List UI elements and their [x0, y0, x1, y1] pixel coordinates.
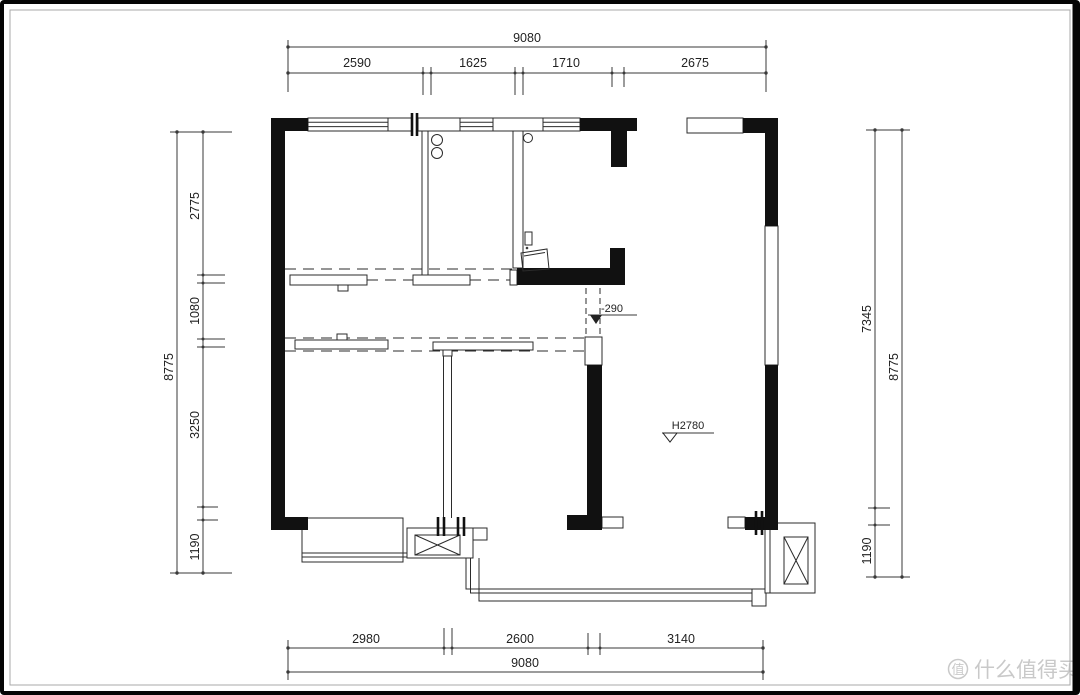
dim-top-total: 9080 [513, 31, 541, 45]
light-walls-and-windows [290, 118, 778, 528]
wall-right-lower [765, 365, 778, 517]
balcony-and-platforms [302, 518, 815, 606]
window-right [765, 226, 778, 365]
window-top-2 [460, 118, 493, 131]
dim-right-lower: 1190 [860, 538, 874, 565]
pipe-riser-icon [432, 148, 443, 159]
dim-left-total: 8775 [162, 353, 176, 381]
interior-wall-kitchen [422, 131, 428, 275]
dim-right-overall: 8775 [887, 353, 901, 381]
dimension-top: 9080 2590 1625 1710 2675 [286, 31, 767, 95]
wall-right-upper [765, 133, 778, 226]
dim-bottom-seg1: 2980 [352, 632, 380, 646]
dimension-left: 8775 2775 1080 3250 1190 [162, 130, 232, 574]
wall-left [271, 118, 285, 530]
dim-bottom-total: 9080 [511, 656, 539, 670]
floor-level-text: -290 [601, 303, 623, 315]
dimension-bottom: 2980 2600 3140 9080 [286, 628, 764, 680]
smzdm-logo-char: 值 [951, 662, 964, 677]
dim-left-seg4: 1190 [188, 534, 202, 561]
window-top-3 [543, 118, 580, 131]
ceiling-height-text: H2780 [672, 420, 704, 432]
pipe-riser-icon [432, 135, 443, 146]
inner-border [10, 10, 1070, 685]
wall-mid-south [587, 365, 602, 515]
interior-wall-bath [513, 131, 523, 268]
dim-top-seg4: 2675 [681, 56, 709, 70]
watermark-text: 什么值得买 [974, 659, 1079, 682]
fixtures [432, 134, 550, 272]
structural-walls [271, 118, 778, 530]
balcony-left [302, 518, 403, 562]
window-top-right [687, 118, 743, 133]
dim-bottom-seg2: 2600 [506, 632, 534, 646]
dimension-right: 7345 1190 8775 [860, 128, 910, 578]
dim-left-seg1: 2775 [188, 192, 202, 220]
dim-top-seg1: 2590 [343, 56, 371, 70]
annotations: -290 H2780 [588, 303, 714, 442]
dim-top-seg3: 1710 [552, 56, 580, 70]
dim-right-upper: 7345 [860, 305, 874, 333]
height-marker-icon [663, 433, 677, 442]
bath-fixture-icon [525, 232, 532, 245]
dim-left-seg3: 3250 [188, 411, 202, 439]
balcony-railing [466, 558, 752, 589]
floor-plan-drawing: -290 H2780 9080 2590 1625 1710 2675 [0, 0, 1080, 695]
dim-top-seg2: 1625 [459, 56, 487, 70]
watermark: 值 什么值得买 [949, 659, 1080, 682]
floor-plan-page: -290 H2780 9080 2590 1625 1710 2675 [0, 0, 1080, 695]
interior-wall-column [585, 337, 602, 365]
window-top-1 [308, 118, 388, 131]
dim-bottom-seg3: 3140 [667, 632, 695, 646]
dim-left-seg2: 1080 [188, 297, 202, 325]
pipe-riser-icon [524, 134, 533, 143]
